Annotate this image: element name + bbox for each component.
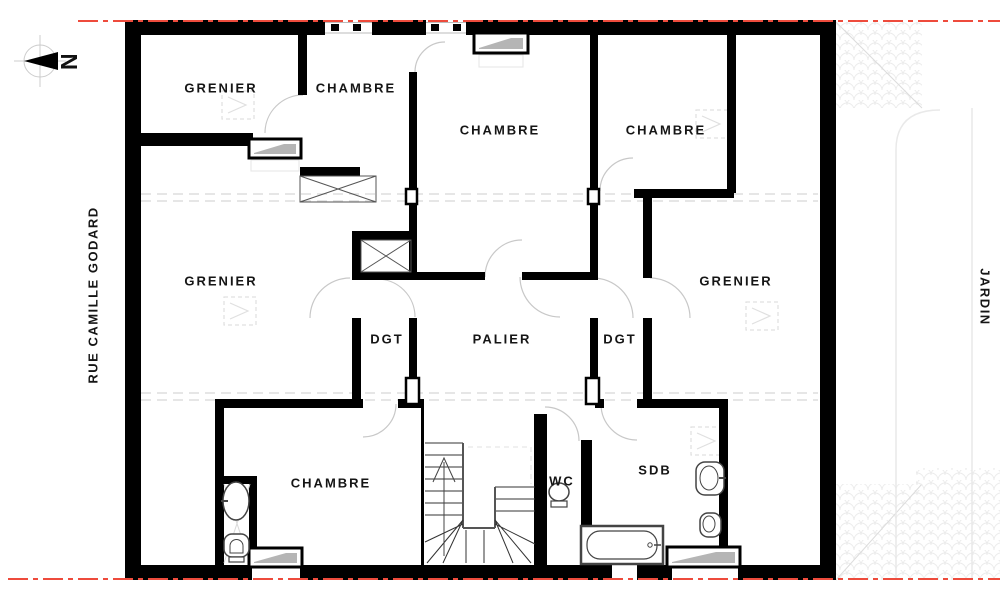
door-arc <box>520 277 560 317</box>
room-label-grenier-right: GRENIER <box>699 274 772 289</box>
staircase <box>425 443 535 563</box>
door-arc <box>545 407 579 441</box>
bathtub-icon <box>581 526 663 564</box>
room-label-grenier-top-left: GRENIER <box>184 81 257 96</box>
velux-icon <box>691 427 723 455</box>
window-bottom-left <box>249 548 302 567</box>
room-label-dgt-left: DGT <box>370 332 403 347</box>
garden-label: JARDIN <box>978 268 993 325</box>
room-label-grenier-left: GRENIER <box>184 274 257 289</box>
door-arcs <box>265 42 690 441</box>
roof-height-lines <box>141 194 818 400</box>
window-dormer-top <box>474 33 528 67</box>
door-arc <box>650 278 690 318</box>
door-arc <box>593 278 633 318</box>
floor-plan-drawing: N <box>0 0 1000 600</box>
room-label-wc: WC <box>549 474 575 489</box>
sink-icon <box>696 462 726 495</box>
door-arc <box>310 278 350 318</box>
toilet-icon <box>700 513 721 537</box>
garden-features <box>836 22 1000 580</box>
window-left-mid <box>249 139 301 171</box>
north-arrow-icon <box>24 52 58 70</box>
door-arc <box>363 404 396 437</box>
room-label-sdb: SDB <box>638 463 671 478</box>
door-arc <box>415 42 445 72</box>
room-label-chambre-bottom-left: CHAMBRE <box>291 476 371 491</box>
door-jambs <box>406 189 599 404</box>
street-label: RUE CAMILLE GODARD <box>86 206 101 383</box>
velux-icon <box>224 297 256 325</box>
window-bottom-right <box>667 547 740 567</box>
room-label-chambre-top-center: CHAMBRE <box>460 123 540 138</box>
room-label-chambre-top-right: CHAMBRE <box>626 123 706 138</box>
toilet-icon <box>224 534 249 562</box>
door-arc <box>601 404 637 440</box>
velux-icon <box>746 302 778 330</box>
room-label-chambre-top-left: CHAMBRE <box>316 81 396 96</box>
north-label: N <box>56 53 82 70</box>
door-arc <box>485 240 522 277</box>
room-label-palier: PALIER <box>473 332 532 347</box>
door-arc <box>377 279 415 317</box>
floor-plan: N GRENIER CHAMBRE CHAMBRE CHAMBRE GRENIE… <box>0 0 1000 600</box>
north-arrow: N <box>14 35 82 87</box>
room-label-dgt-right: DGT <box>603 332 636 347</box>
door-arc <box>265 95 303 133</box>
door-arc <box>600 158 633 191</box>
